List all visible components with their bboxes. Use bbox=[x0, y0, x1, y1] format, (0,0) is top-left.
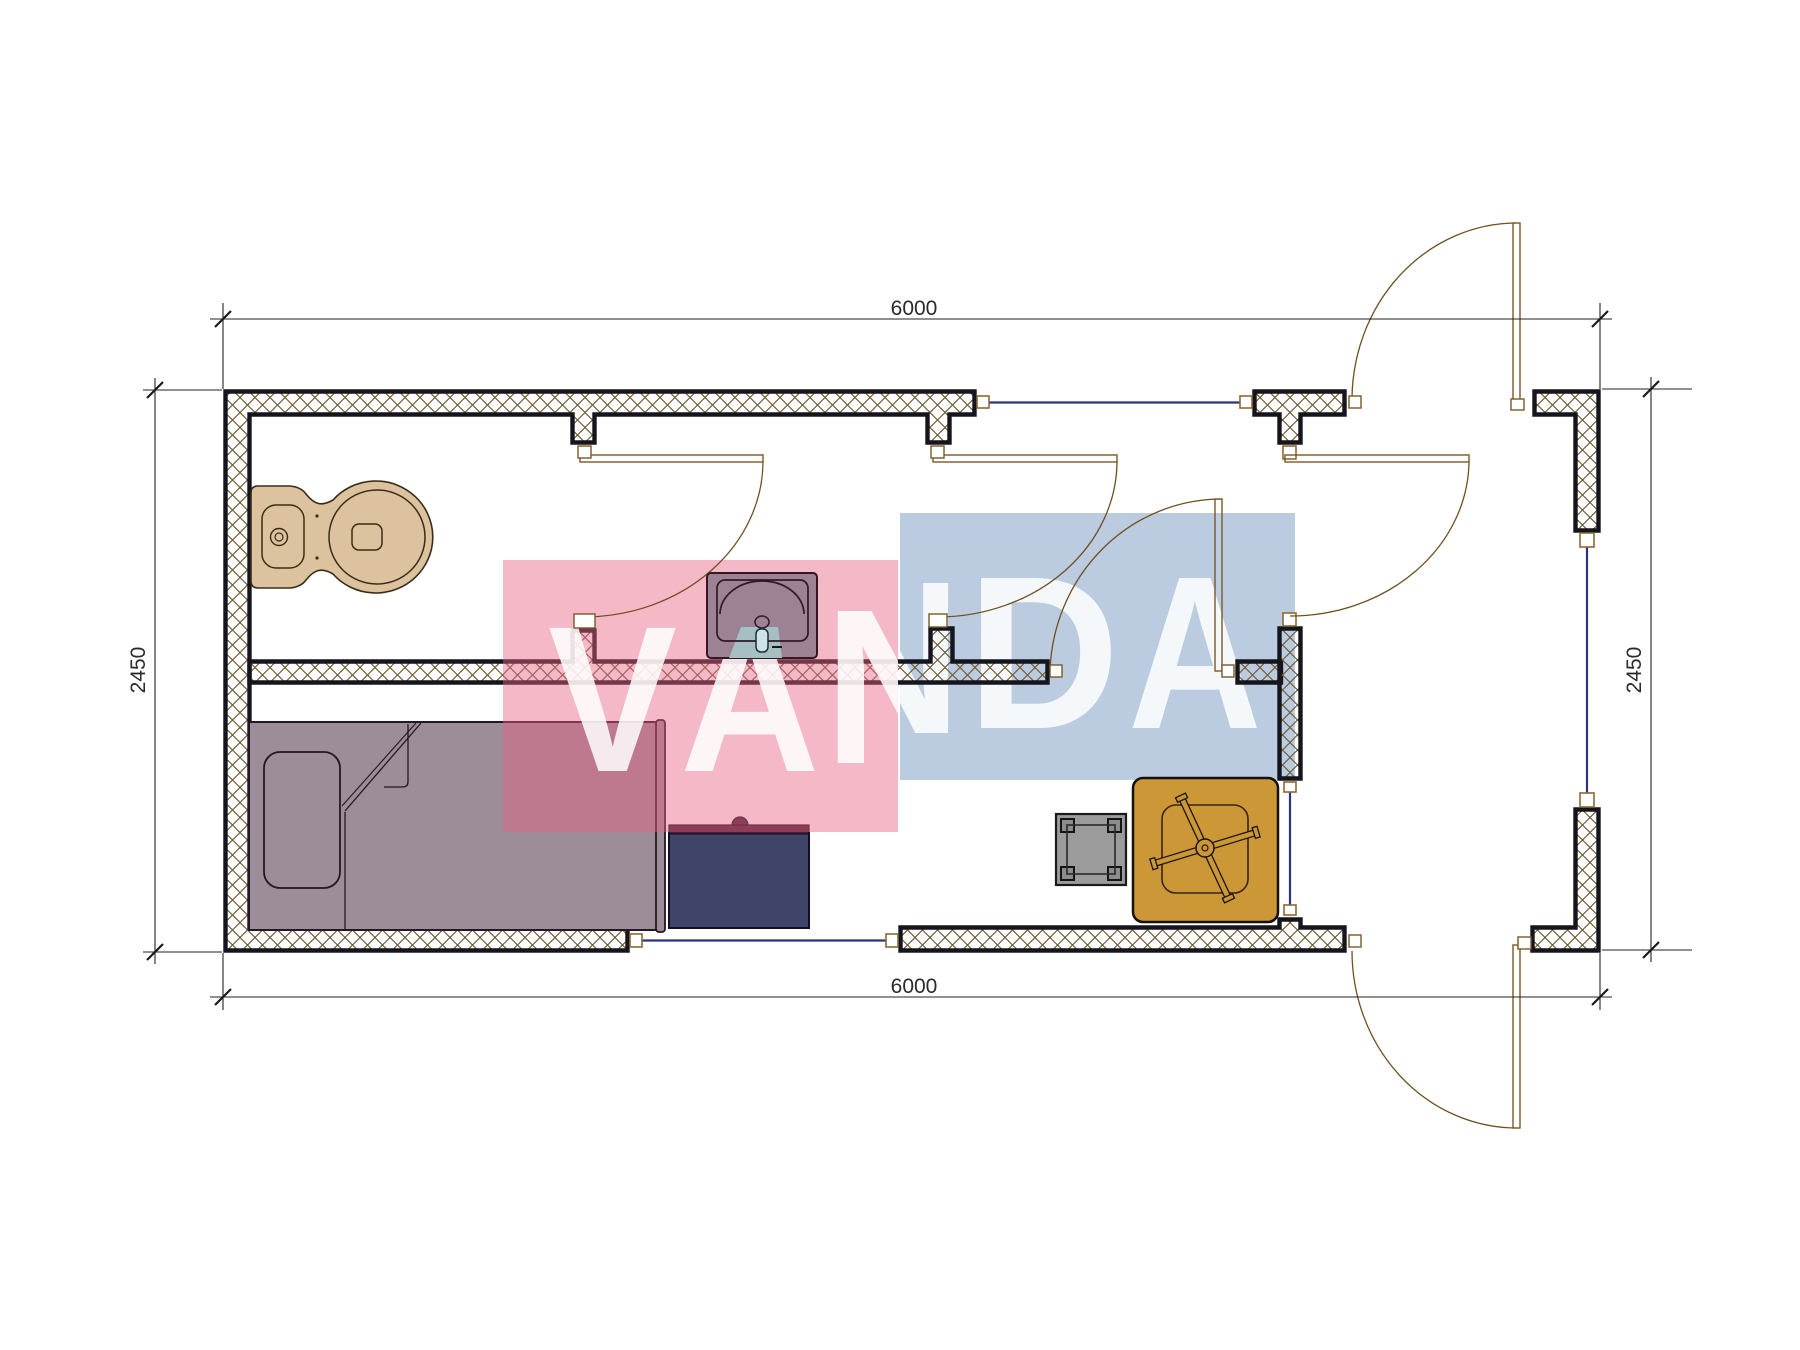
svg-text:D: D bbox=[967, 531, 1120, 775]
svg-text:6000: 6000 bbox=[891, 975, 938, 998]
svg-text:V: V bbox=[548, 583, 677, 816]
svg-text:6000: 6000 bbox=[891, 297, 938, 320]
svg-text:2450: 2450 bbox=[127, 647, 150, 694]
svg-text:2450: 2450 bbox=[1623, 647, 1646, 694]
svg-text:A: A bbox=[1128, 531, 1262, 775]
